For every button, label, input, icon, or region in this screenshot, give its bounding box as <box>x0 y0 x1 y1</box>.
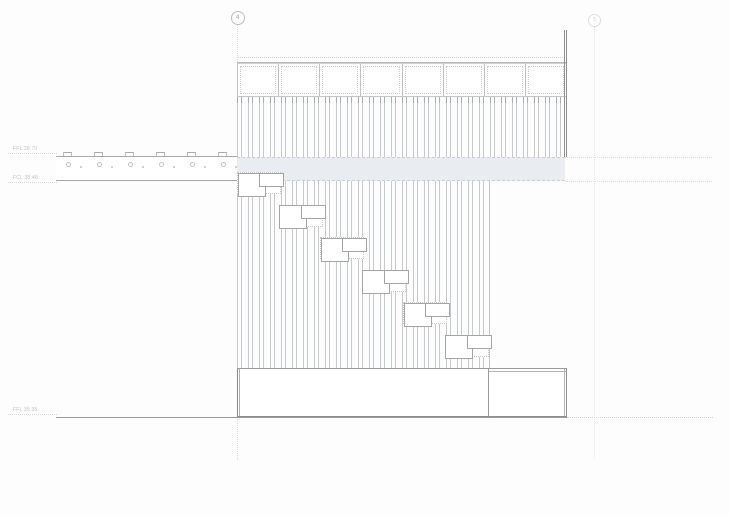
slab-bottom-extension-line <box>565 181 712 182</box>
stair-step <box>403 302 447 324</box>
stair-step <box>237 172 281 194</box>
fixing-clip-icon <box>125 152 134 156</box>
step-riser <box>384 270 409 284</box>
clerestory-panel <box>444 64 485 96</box>
stair-step-windows <box>237 172 497 367</box>
level-leader-line <box>8 153 57 154</box>
clerestory-panel <box>320 64 361 96</box>
fixing-circle-icon <box>128 162 133 167</box>
grid-marker-left-label: 4 <box>236 15 239 21</box>
fixing-clip-icon <box>218 152 227 156</box>
step-riser <box>301 205 326 219</box>
clerestory-panel <box>279 64 320 96</box>
clerestory-panel-row <box>237 63 567 97</box>
grid-marker-left: 4 <box>231 11 245 25</box>
clerestory-panel <box>238 64 279 96</box>
clerestory-panel <box>526 64 566 96</box>
stair-step <box>320 237 364 259</box>
fixing-circle-icon <box>66 162 71 167</box>
fixing-dot-icon <box>204 166 206 168</box>
level-label: FFL 38.70 <box>13 147 57 152</box>
level-label: FFL 35.35 <box>13 408 57 413</box>
grid-marker-right: 5 <box>588 14 601 27</box>
level-annotation-ffl-lower: FFL 35.35 <box>8 408 57 416</box>
level-leader-line <box>8 182 57 183</box>
canopy-section <box>56 156 237 181</box>
stair-step <box>362 270 406 292</box>
grid-line-right <box>594 27 595 458</box>
fixing-dot-icon <box>235 166 237 168</box>
clerestory-panel <box>403 64 444 96</box>
fixing-circle-icon <box>159 162 164 167</box>
step-riser <box>467 335 492 349</box>
step-riser <box>425 303 450 317</box>
fixing-clip-icon <box>156 152 165 156</box>
stair-step <box>445 335 489 357</box>
level-label: FCL 38.46 <box>13 176 57 181</box>
grid-marker-right-label: 5 <box>593 17 596 23</box>
clerestory-panel <box>361 64 402 96</box>
level-annotation-ffl-upper: FFL 38.70 <box>8 147 57 155</box>
fixing-clip-icon <box>63 152 72 156</box>
level-leader-line <box>8 414 57 415</box>
fixing-dot-icon <box>80 166 82 168</box>
canopy-fixing-clips <box>56 150 237 156</box>
fixing-circle-icon <box>97 162 102 167</box>
plinth-main <box>237 368 489 417</box>
parapet-dotted-line <box>237 57 565 58</box>
fixing-circle-icon <box>221 162 226 167</box>
fixing-dot-icon <box>111 166 113 168</box>
ground-line-extension <box>567 417 713 418</box>
level-annotation-fcl: FCL 38.46 <box>8 176 57 184</box>
fixing-dot-icon <box>173 166 175 168</box>
stair-step <box>279 205 323 227</box>
clerestory-panel <box>485 64 526 96</box>
fixing-dot-icon <box>142 166 144 168</box>
fixing-circle-icon <box>190 162 195 167</box>
plinth-right <box>489 368 567 417</box>
architectural-section-drawing: 4 5 FFL 38.70 FCL 38.46 FFL 35.35 <box>0 0 729 515</box>
cladding-fixing-comb <box>237 97 565 103</box>
step-riser <box>342 238 367 252</box>
fixing-clip-icon <box>187 152 196 156</box>
fixing-clip-icon <box>94 152 103 156</box>
building-right-edge <box>564 30 567 157</box>
upper-cladding-hatch <box>237 97 565 157</box>
slab-top-extension-line <box>565 157 712 158</box>
ground-line <box>56 417 567 418</box>
step-riser <box>259 173 284 187</box>
